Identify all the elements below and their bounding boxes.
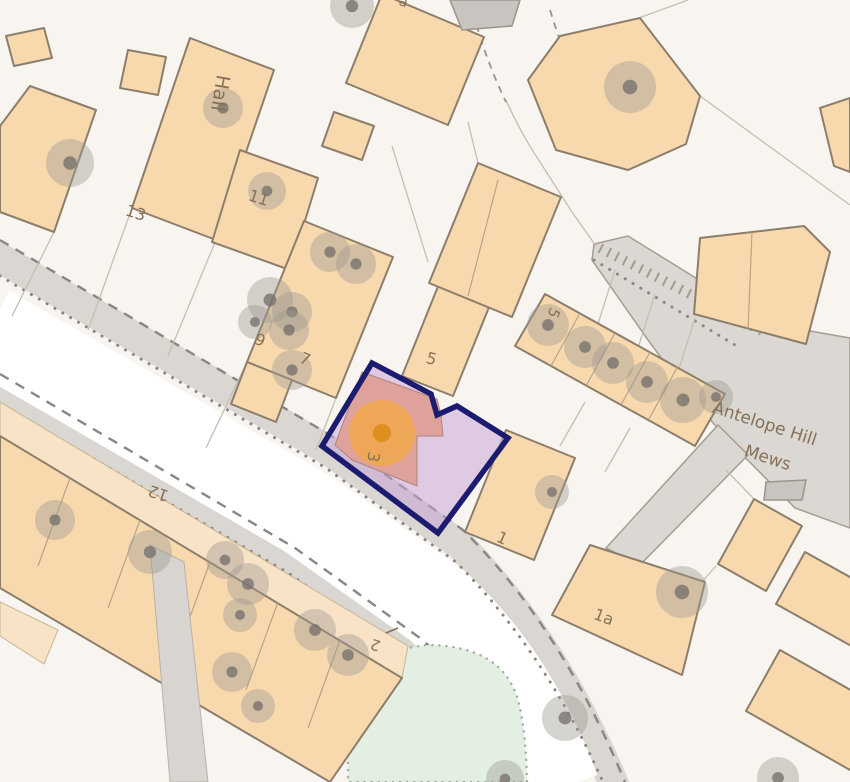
tree-trunk-icon — [559, 712, 572, 725]
tree-trunk-icon — [283, 324, 294, 335]
tree-trunk-icon — [342, 649, 354, 661]
tree-trunk-icon — [677, 394, 690, 407]
tree-trunk-icon — [346, 0, 358, 12]
tree-trunk-icon — [220, 555, 231, 566]
tree-trunk-icon — [144, 546, 156, 558]
tree-trunk-icon — [226, 666, 237, 677]
tree-trunk-icon — [542, 319, 554, 331]
tree-trunk-icon — [286, 364, 297, 375]
tree-trunk-icon — [641, 376, 653, 388]
tree-trunk-icon — [350, 258, 361, 269]
tree-trunk-icon — [607, 357, 619, 369]
tree-trunk-icon — [309, 624, 321, 636]
tree-trunk-icon — [250, 317, 260, 327]
map-canvas[interactable]: Hall13119755311a122aAntelope HillMews — [0, 0, 850, 782]
tree-trunk-icon — [623, 80, 638, 95]
tree-trunk-icon — [547, 487, 557, 497]
tree-trunk-icon — [63, 156, 76, 169]
location-map[interactable]: Hall13119755311a122aAntelope HillMews — [0, 0, 850, 782]
tree-trunk-icon — [675, 585, 690, 600]
tree-trunk-icon — [324, 246, 335, 257]
tree-trunk-icon — [49, 514, 60, 525]
tree-trunk-icon — [235, 610, 245, 620]
tree-trunk-icon — [253, 701, 263, 711]
tree-trunk-icon — [579, 341, 591, 353]
tree-trunk-icon — [242, 578, 254, 590]
